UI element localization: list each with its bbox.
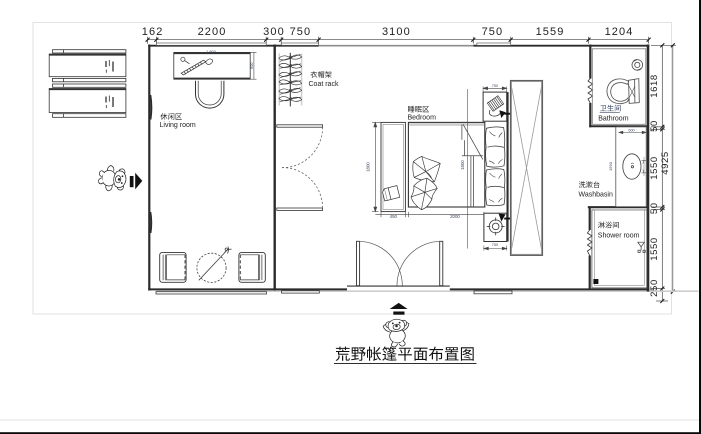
svg-text:2200: 2200 bbox=[198, 26, 227, 38]
svg-text:2000: 2000 bbox=[450, 214, 460, 219]
svg-text:Coat rack: Coat rack bbox=[309, 81, 339, 88]
svg-text:50: 50 bbox=[649, 120, 660, 132]
svg-text:750: 750 bbox=[482, 26, 504, 38]
svg-text:750: 750 bbox=[290, 26, 312, 38]
svg-text:1550: 1550 bbox=[649, 156, 660, 180]
svg-text:750: 750 bbox=[492, 84, 498, 88]
svg-text:1 800: 1 800 bbox=[206, 49, 217, 54]
svg-text:1800: 1800 bbox=[460, 160, 465, 170]
svg-text:1618: 1618 bbox=[649, 74, 660, 98]
svg-text:Living room: Living room bbox=[160, 122, 196, 129]
svg-text:4925: 4925 bbox=[660, 151, 671, 175]
svg-text:450: 450 bbox=[390, 214, 398, 219]
svg-text:250: 250 bbox=[649, 279, 660, 297]
svg-text:1204: 1204 bbox=[605, 26, 634, 38]
svg-text:3100: 3100 bbox=[382, 26, 411, 38]
svg-text:162: 162 bbox=[142, 26, 164, 38]
svg-text:600: 600 bbox=[628, 129, 634, 133]
svg-text:50: 50 bbox=[649, 202, 660, 214]
svg-text:600: 600 bbox=[249, 62, 254, 69]
svg-text:Bedroom: Bedroom bbox=[408, 115, 437, 122]
svg-text:Shower room: Shower room bbox=[598, 232, 640, 239]
svg-text:1590: 1590 bbox=[608, 161, 613, 171]
svg-text:750: 750 bbox=[492, 243, 498, 247]
svg-text:1550: 1550 bbox=[649, 237, 660, 261]
svg-text:1800: 1800 bbox=[365, 162, 370, 172]
svg-text:300: 300 bbox=[263, 26, 285, 38]
svg-text:1559: 1559 bbox=[536, 26, 565, 38]
svg-text:Washbasin: Washbasin bbox=[579, 192, 613, 199]
svg-text:Bathroom: Bathroom bbox=[598, 116, 629, 123]
